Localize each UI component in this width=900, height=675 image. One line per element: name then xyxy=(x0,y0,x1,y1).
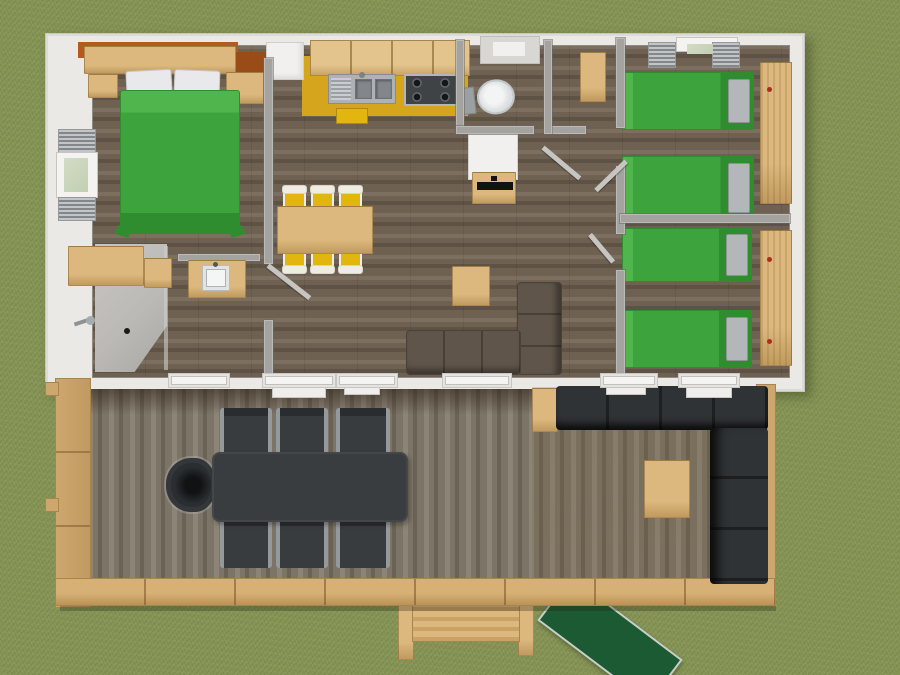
left-window-shutter-bottom xyxy=(58,197,96,221)
sofa-chaise-section[interactable] xyxy=(517,282,562,375)
shower-drain xyxy=(124,328,130,334)
corner-sofa-side-panel xyxy=(532,388,558,432)
wall-bedroom-living-upper xyxy=(264,58,273,264)
wardrobe-handle xyxy=(767,87,772,92)
corner-sofa-right[interactable] xyxy=(710,428,768,584)
toilet-bowl xyxy=(475,77,516,116)
washbasin xyxy=(202,265,230,291)
deck-wall-window-3[interactable] xyxy=(442,373,512,388)
dining-table[interactable] xyxy=(277,206,373,254)
wall-hall-bedrooms-a xyxy=(616,38,625,128)
shower-head[interactable] xyxy=(86,316,95,325)
kitchen-stool[interactable] xyxy=(336,108,368,124)
deck-chair-6[interactable] xyxy=(336,518,390,568)
heater-vent-slot xyxy=(477,182,513,190)
deck-wall-door-2[interactable] xyxy=(678,373,740,388)
wall-bedroom-living-lower xyxy=(264,320,273,378)
window-2-sill xyxy=(344,387,380,395)
shelf-handle-1 xyxy=(767,257,772,262)
single-bed-2[interactable] xyxy=(622,156,754,220)
top-window-glass xyxy=(687,44,713,54)
bedside-unit-left[interactable] xyxy=(88,74,118,98)
top-window-shutter-left xyxy=(648,42,676,68)
door-2-threshold xyxy=(686,387,732,398)
deck-wall-window-1[interactable] xyxy=(168,373,230,388)
wall-wc-left xyxy=(456,40,464,134)
wall-hall-bedrooms-b xyxy=(616,166,625,234)
toilet[interactable] xyxy=(460,75,520,121)
wall-hall-bedrooms-c xyxy=(616,270,625,378)
deck-chair-4[interactable] xyxy=(220,518,272,568)
deck-dining-table[interactable] xyxy=(212,452,408,522)
sink-basin-2 xyxy=(375,79,392,99)
kitchen-sink[interactable] xyxy=(328,74,396,104)
deck-ground-shadow xyxy=(60,606,776,611)
left-window-shutter-top xyxy=(58,129,96,153)
roof-vent-pane xyxy=(493,42,525,56)
orange-accent-wall-2 xyxy=(236,52,266,72)
window-4-sill xyxy=(606,387,646,395)
railing-post-1 xyxy=(45,382,59,396)
deck-chair-3[interactable] xyxy=(336,408,390,456)
water-heater-cabinet[interactable] xyxy=(472,172,516,204)
top-window-shutter-right xyxy=(712,42,740,68)
kitchen-upper-cabinets[interactable] xyxy=(310,40,470,76)
shelf-bedroom3[interactable] xyxy=(760,230,792,366)
deck-railing-left xyxy=(55,378,91,608)
wall-between-bedrooms xyxy=(620,214,790,223)
deck-coffee-table[interactable] xyxy=(644,460,690,518)
washbasin-faucet xyxy=(213,262,218,267)
deck-chair-5[interactable] xyxy=(276,518,328,568)
railing-post-2 xyxy=(45,498,59,512)
single-bed-3[interactable] xyxy=(622,228,752,282)
corner-sofa-top[interactable] xyxy=(556,386,768,430)
bathroom-dresser[interactable] xyxy=(68,246,144,286)
bathroom-cabinet[interactable] xyxy=(144,258,172,288)
deck-wall-window-2[interactable] xyxy=(336,373,398,388)
left-window-glass xyxy=(64,158,88,192)
deck-chair-1[interactable] xyxy=(220,408,272,456)
deck-armchair[interactable] xyxy=(166,458,216,512)
sink-basin-1 xyxy=(355,79,372,99)
wall-wc-right xyxy=(544,40,552,134)
single-bed-1[interactable] xyxy=(622,72,754,130)
door-1-threshold xyxy=(272,387,326,398)
deck-wall-window-4[interactable] xyxy=(600,373,658,388)
deck-chair-2[interactable] xyxy=(276,408,328,456)
wall-wc-bottom xyxy=(456,126,534,134)
floorplan-canvas[interactable] xyxy=(0,0,900,675)
wardrobe-bedroom2[interactable] xyxy=(760,62,792,204)
bed-pillow xyxy=(726,317,748,362)
wall-hall-stub xyxy=(552,126,586,134)
hall-cabinet[interactable] xyxy=(580,52,606,102)
shelf-handle-2 xyxy=(767,339,772,344)
bed-pillow xyxy=(728,79,750,124)
bed-pillow xyxy=(728,163,750,213)
sink-faucet xyxy=(359,72,365,78)
sink-drainboard xyxy=(331,78,351,100)
stove-hob[interactable] xyxy=(404,74,460,106)
single-bed-4[interactable] xyxy=(622,310,752,368)
deck-wall-door-1[interactable] xyxy=(262,373,336,388)
roof-vent-window xyxy=(480,36,540,64)
deck-railing-bottom xyxy=(55,578,776,606)
sofa-main-section[interactable] xyxy=(406,330,521,375)
bed-pillow xyxy=(726,234,748,276)
side-table[interactable] xyxy=(452,266,490,306)
heater-knob xyxy=(491,176,497,181)
washbasin-cabinet[interactable] xyxy=(188,260,246,298)
double-bed[interactable] xyxy=(120,90,240,234)
